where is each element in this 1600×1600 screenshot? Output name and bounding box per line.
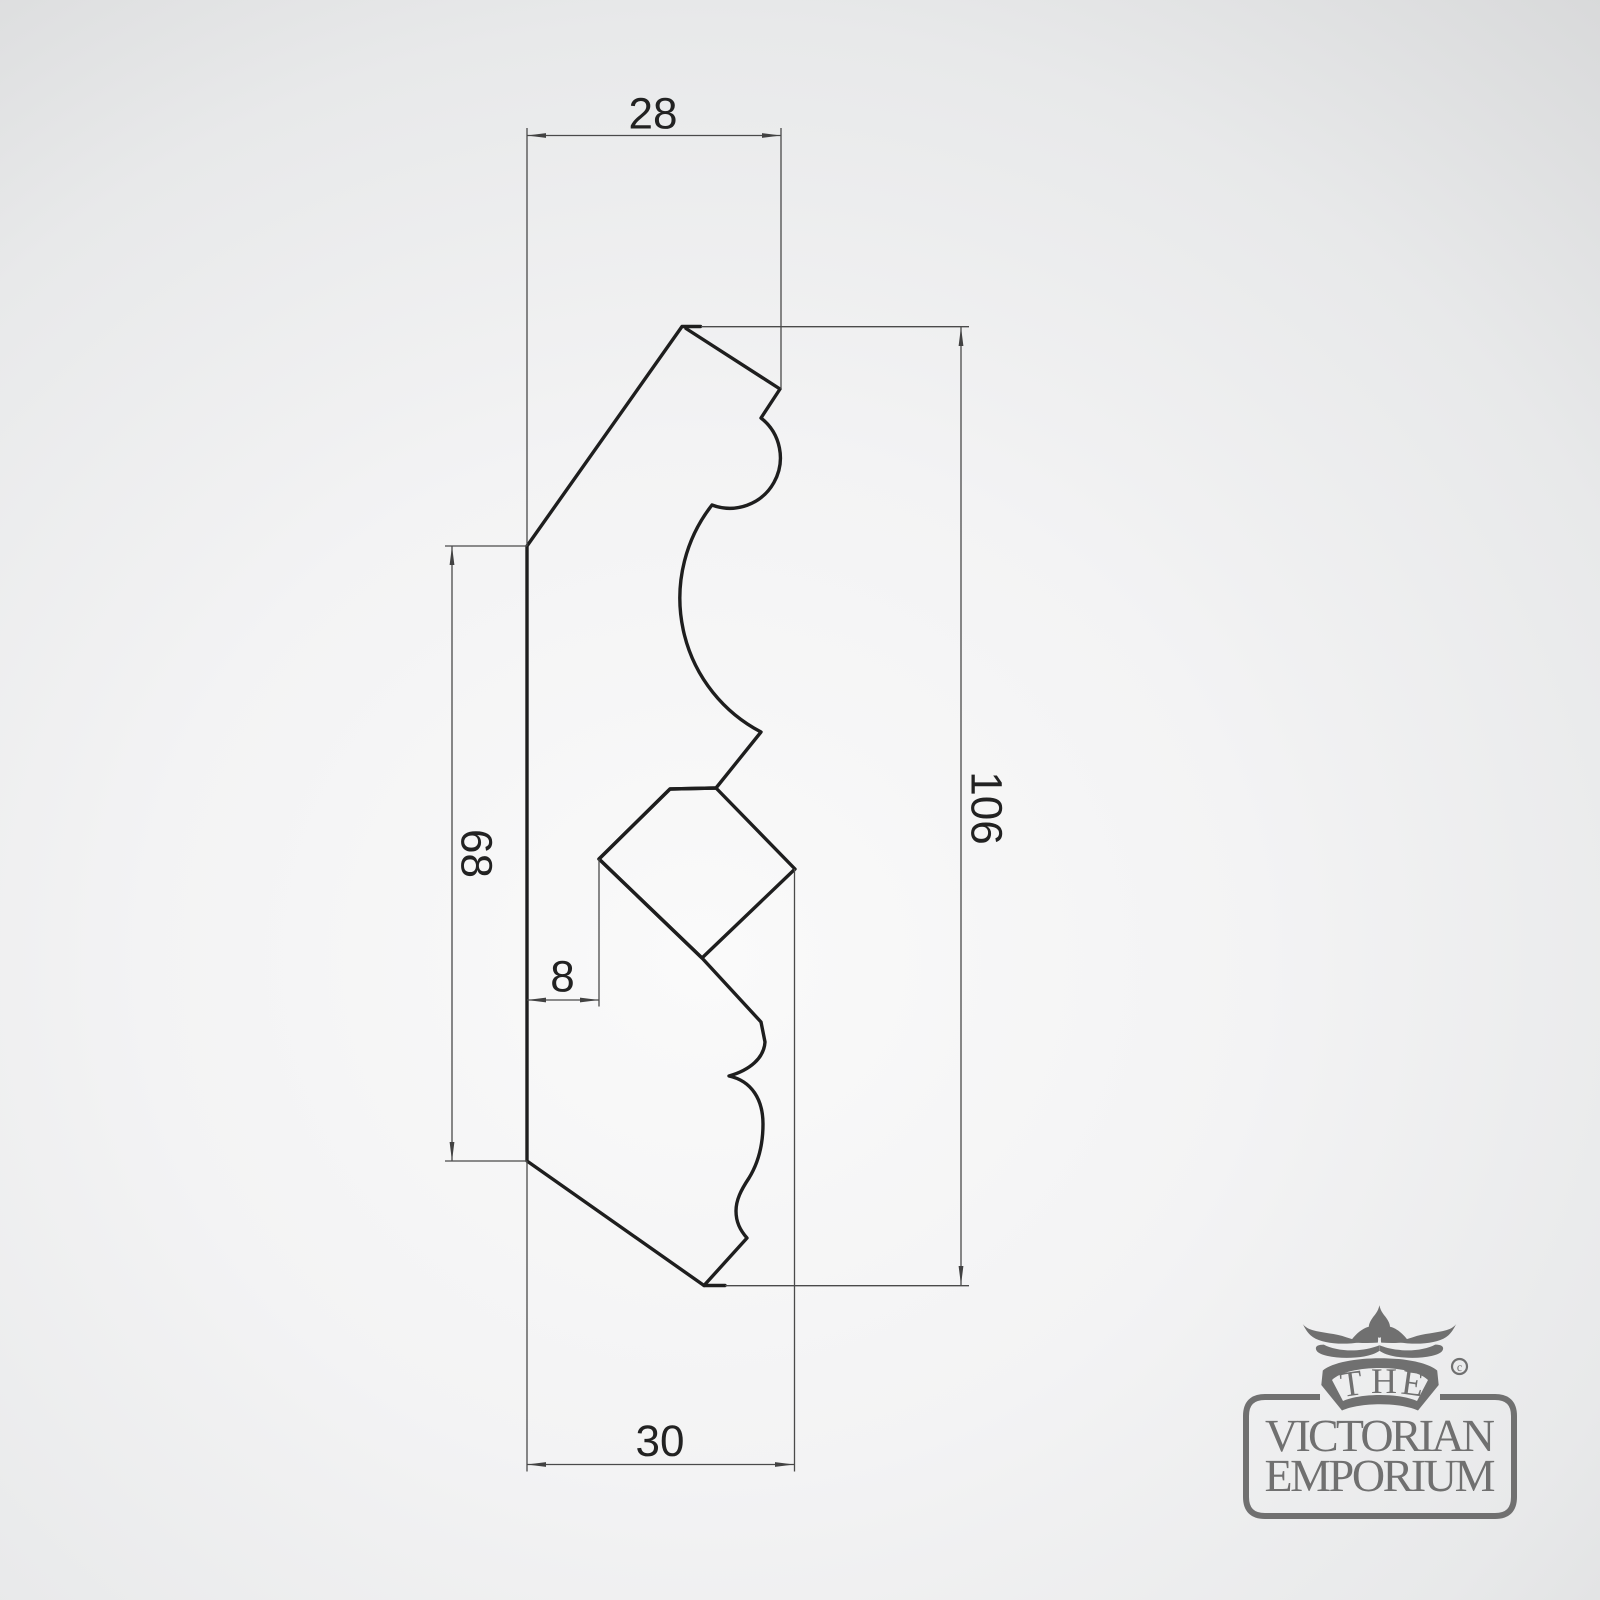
svg-text:30: 30 — [636, 1417, 685, 1466]
svg-text:28: 28 — [629, 90, 678, 139]
svg-text:c: c — [1457, 1360, 1462, 1374]
svg-text:EMPORIUM: EMPORIUM — [1265, 1450, 1496, 1501]
svg-text:8: 8 — [550, 952, 574, 1001]
svg-text:68: 68 — [452, 829, 501, 878]
svg-text:H: H — [1371, 1361, 1397, 1401]
svg-text:106: 106 — [962, 771, 1011, 844]
